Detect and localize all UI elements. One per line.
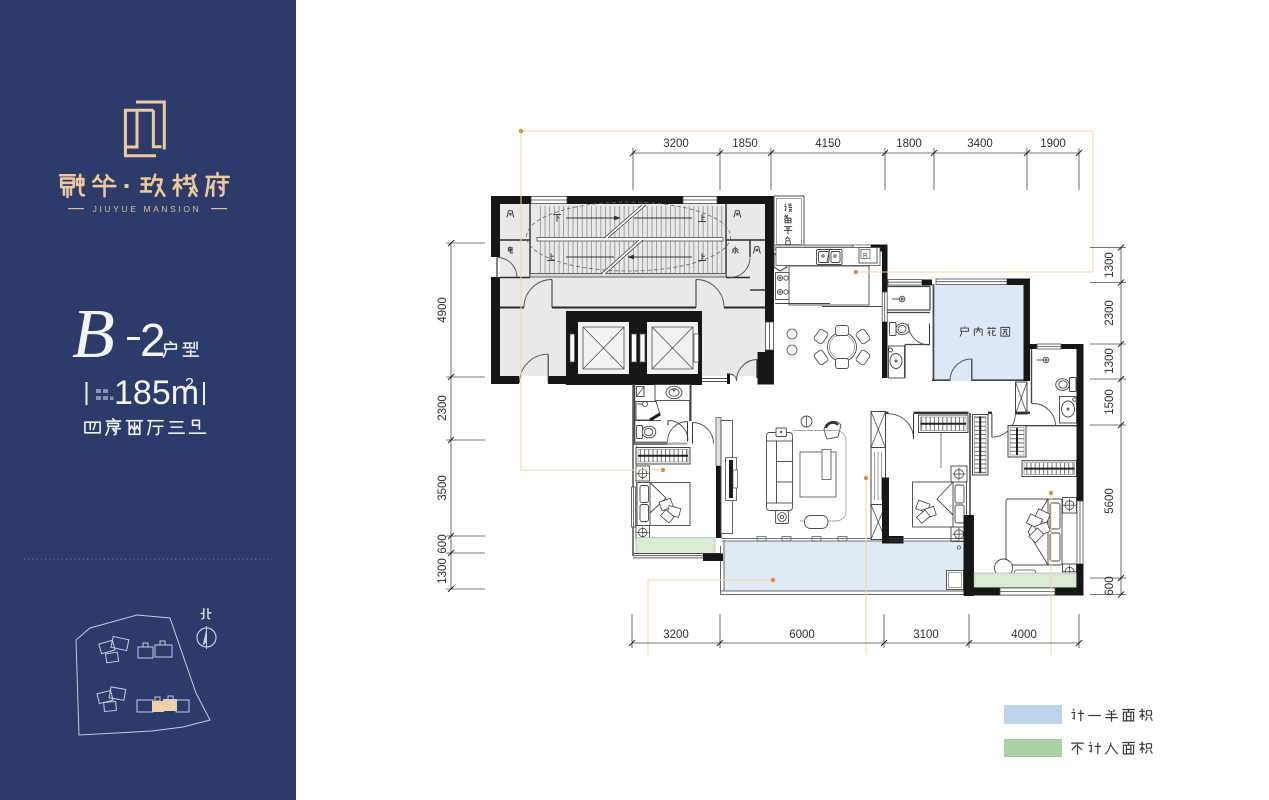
- svg-text:4150: 4150: [815, 138, 841, 150]
- svg-text:3200: 3200: [663, 629, 689, 641]
- svg-text:2: 2: [140, 314, 166, 366]
- svg-text:3200: 3200: [663, 138, 689, 150]
- svg-text:3400: 3400: [967, 138, 993, 150]
- svg-text:R: R: [863, 253, 868, 260]
- svg-text:JIUYUE MANSION: JIUYUE MANSION: [93, 204, 202, 214]
- svg-text:3500: 3500: [437, 475, 449, 501]
- svg-text:1850: 1850: [732, 138, 758, 150]
- svg-text:3100: 3100: [913, 629, 939, 641]
- svg-text:B: B: [72, 296, 115, 373]
- svg-text:6000: 6000: [789, 629, 815, 641]
- svg-text:600: 600: [1104, 576, 1116, 595]
- svg-text:2: 2: [185, 376, 194, 393]
- svg-text:1800: 1800: [896, 138, 922, 150]
- svg-text:1300: 1300: [1104, 348, 1116, 374]
- svg-text:5600: 5600: [1104, 488, 1116, 514]
- svg-text:4000: 4000: [1011, 629, 1037, 641]
- svg-text:1900: 1900: [1040, 138, 1066, 150]
- svg-text:4900: 4900: [437, 297, 449, 323]
- svg-text:1300: 1300: [1104, 252, 1116, 278]
- svg-text:1300: 1300: [437, 558, 449, 584]
- svg-text:1500: 1500: [1104, 389, 1116, 415]
- svg-text:600: 600: [437, 534, 449, 553]
- svg-text:2300: 2300: [437, 395, 449, 421]
- svg-text:2300: 2300: [1104, 300, 1116, 326]
